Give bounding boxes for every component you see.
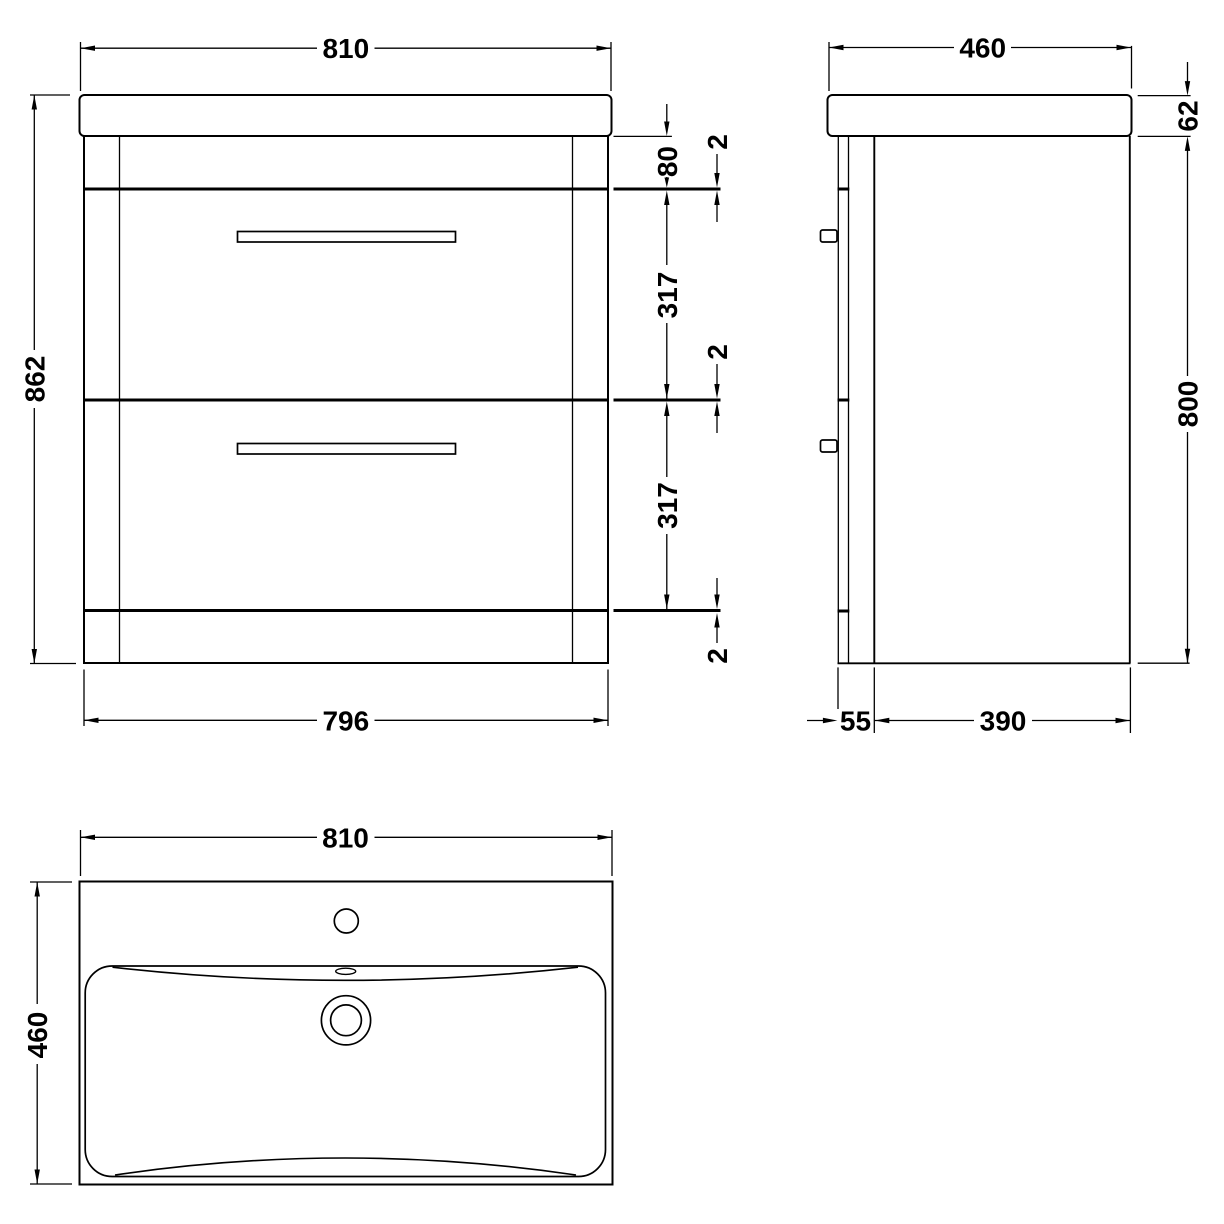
svg-text:2: 2 (702, 134, 733, 150)
svg-text:800: 800 (1173, 381, 1204, 428)
svg-text:796: 796 (322, 705, 369, 736)
svg-text:862: 862 (19, 356, 50, 403)
svg-text:2: 2 (702, 344, 733, 360)
svg-text:810: 810 (322, 822, 369, 853)
svg-text:390: 390 (980, 706, 1027, 737)
svg-text:810: 810 (322, 33, 369, 64)
svg-text:2: 2 (702, 648, 733, 664)
svg-text:62: 62 (1173, 100, 1204, 131)
svg-text:317: 317 (652, 272, 683, 319)
svg-text:460: 460 (959, 33, 1006, 64)
svg-text:80: 80 (652, 146, 683, 177)
svg-text:55: 55 (840, 706, 871, 737)
svg-text:317: 317 (652, 482, 683, 529)
svg-text:460: 460 (22, 1012, 53, 1059)
